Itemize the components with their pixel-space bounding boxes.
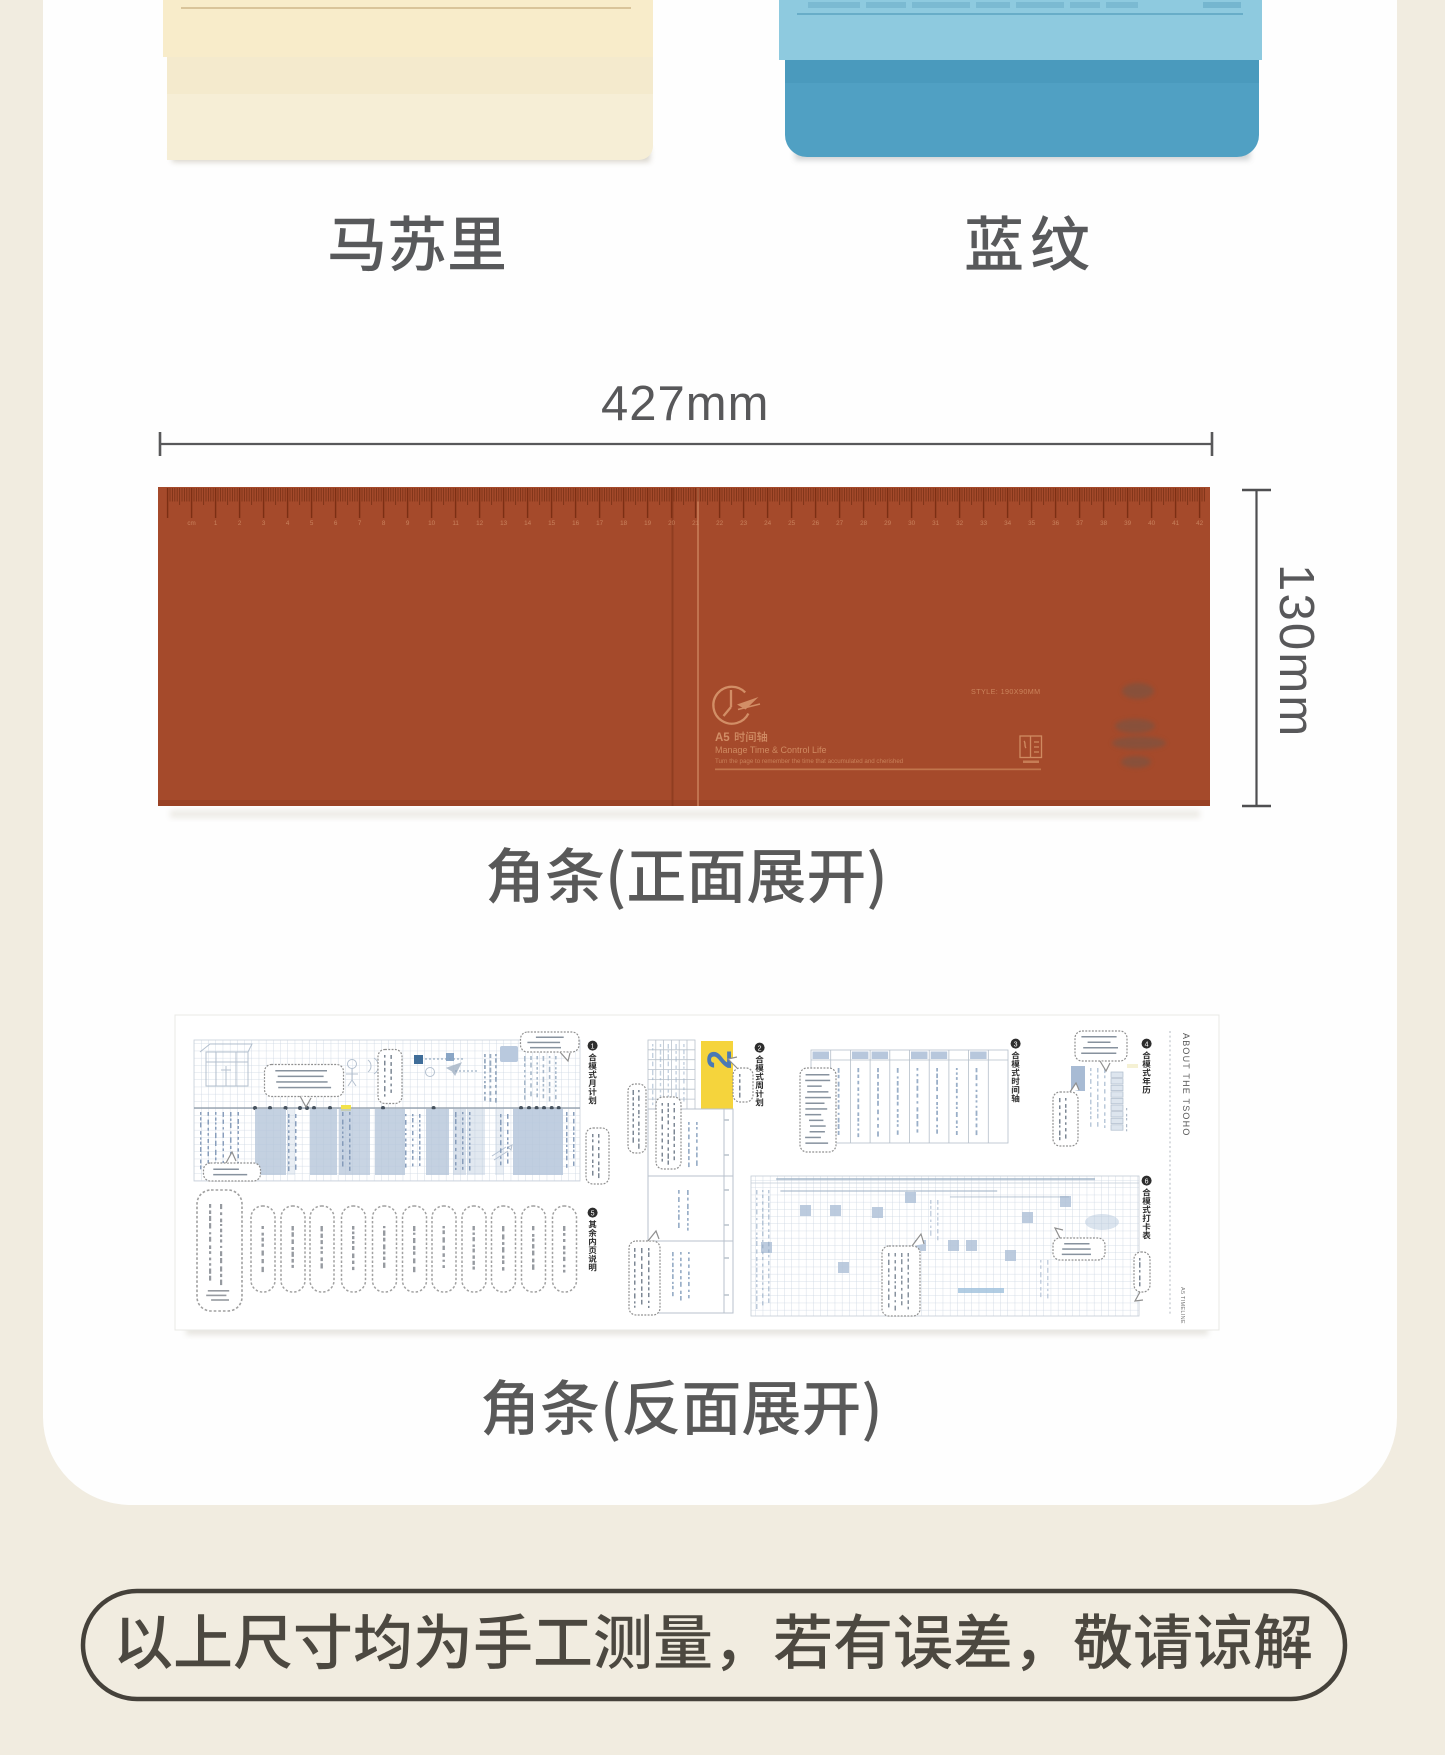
svg-text:23: 23 — [740, 520, 748, 527]
svg-text:19: 19 — [644, 520, 652, 527]
svg-text:11: 11 — [452, 520, 459, 527]
svg-text:A5: A5 — [715, 732, 730, 744]
svg-text:35: 35 — [1028, 520, 1036, 527]
svg-text:17: 17 — [596, 520, 604, 527]
svg-text:41: 41 — [1172, 520, 1180, 527]
svg-text:4: 4 — [286, 520, 290, 527]
svg-text:40: 40 — [1148, 520, 1156, 527]
svg-text:10: 10 — [428, 520, 436, 527]
svg-text:42: 42 — [1196, 520, 1204, 527]
svg-text:12: 12 — [476, 520, 484, 527]
svg-text:6: 6 — [1145, 1178, 1149, 1185]
svg-text:cm: cm — [187, 520, 195, 527]
svg-text:5: 5 — [591, 1210, 595, 1217]
svg-text:33: 33 — [980, 520, 988, 527]
svg-text:37: 37 — [1076, 520, 1084, 527]
svg-text:427mm: 427mm — [601, 377, 769, 431]
svg-text:18: 18 — [620, 520, 628, 527]
svg-text:3: 3 — [1014, 1041, 1018, 1048]
svg-text:9: 9 — [406, 520, 410, 527]
svg-text:1: 1 — [214, 520, 218, 527]
svg-text:6: 6 — [334, 520, 338, 527]
svg-text:A5 TIMELINE: A5 TIMELINE — [1179, 1287, 1185, 1324]
svg-text:20: 20 — [668, 520, 676, 527]
svg-text:26: 26 — [812, 520, 820, 527]
svg-text:27: 27 — [836, 520, 844, 527]
svg-text:4: 4 — [1145, 1041, 1149, 1048]
svg-text:32: 32 — [956, 520, 964, 527]
svg-text:24: 24 — [764, 520, 772, 527]
svg-text:8: 8 — [382, 520, 386, 527]
svg-text:22: 22 — [716, 520, 724, 527]
svg-text:14: 14 — [524, 520, 532, 527]
svg-text:13: 13 — [500, 520, 508, 527]
svg-text:39: 39 — [1124, 520, 1132, 527]
svg-text:1: 1 — [591, 1043, 595, 1050]
svg-text:34: 34 — [1004, 520, 1012, 527]
svg-text:31: 31 — [932, 520, 940, 527]
svg-text:15: 15 — [548, 520, 556, 527]
svg-text:25: 25 — [788, 520, 796, 527]
svg-text:30: 30 — [908, 520, 916, 527]
svg-text:ABOUT THE TSOHO: ABOUT THE TSOHO — [1181, 1033, 1191, 1137]
svg-text:130mm: 130mm — [1269, 564, 1323, 738]
svg-text:29: 29 — [884, 520, 892, 527]
svg-text:21: 21 — [692, 520, 700, 527]
svg-text:Manage Time & Control Life: Manage Time & Control Life — [715, 745, 827, 755]
svg-text:16: 16 — [572, 520, 580, 527]
svg-text:STYLE: 190X90MM: STYLE: 190X90MM — [971, 687, 1041, 696]
svg-text:2: 2 — [238, 520, 242, 527]
svg-text:3: 3 — [262, 520, 266, 527]
svg-text:2: 2 — [758, 1045, 762, 1052]
svg-text:Turn the page to remember the: Turn the page to remember the time that … — [715, 758, 904, 765]
svg-text:28: 28 — [860, 520, 868, 527]
svg-text:5: 5 — [310, 520, 314, 527]
svg-text:36: 36 — [1052, 520, 1060, 527]
svg-text:7: 7 — [358, 520, 362, 527]
svg-text:38: 38 — [1100, 520, 1108, 527]
